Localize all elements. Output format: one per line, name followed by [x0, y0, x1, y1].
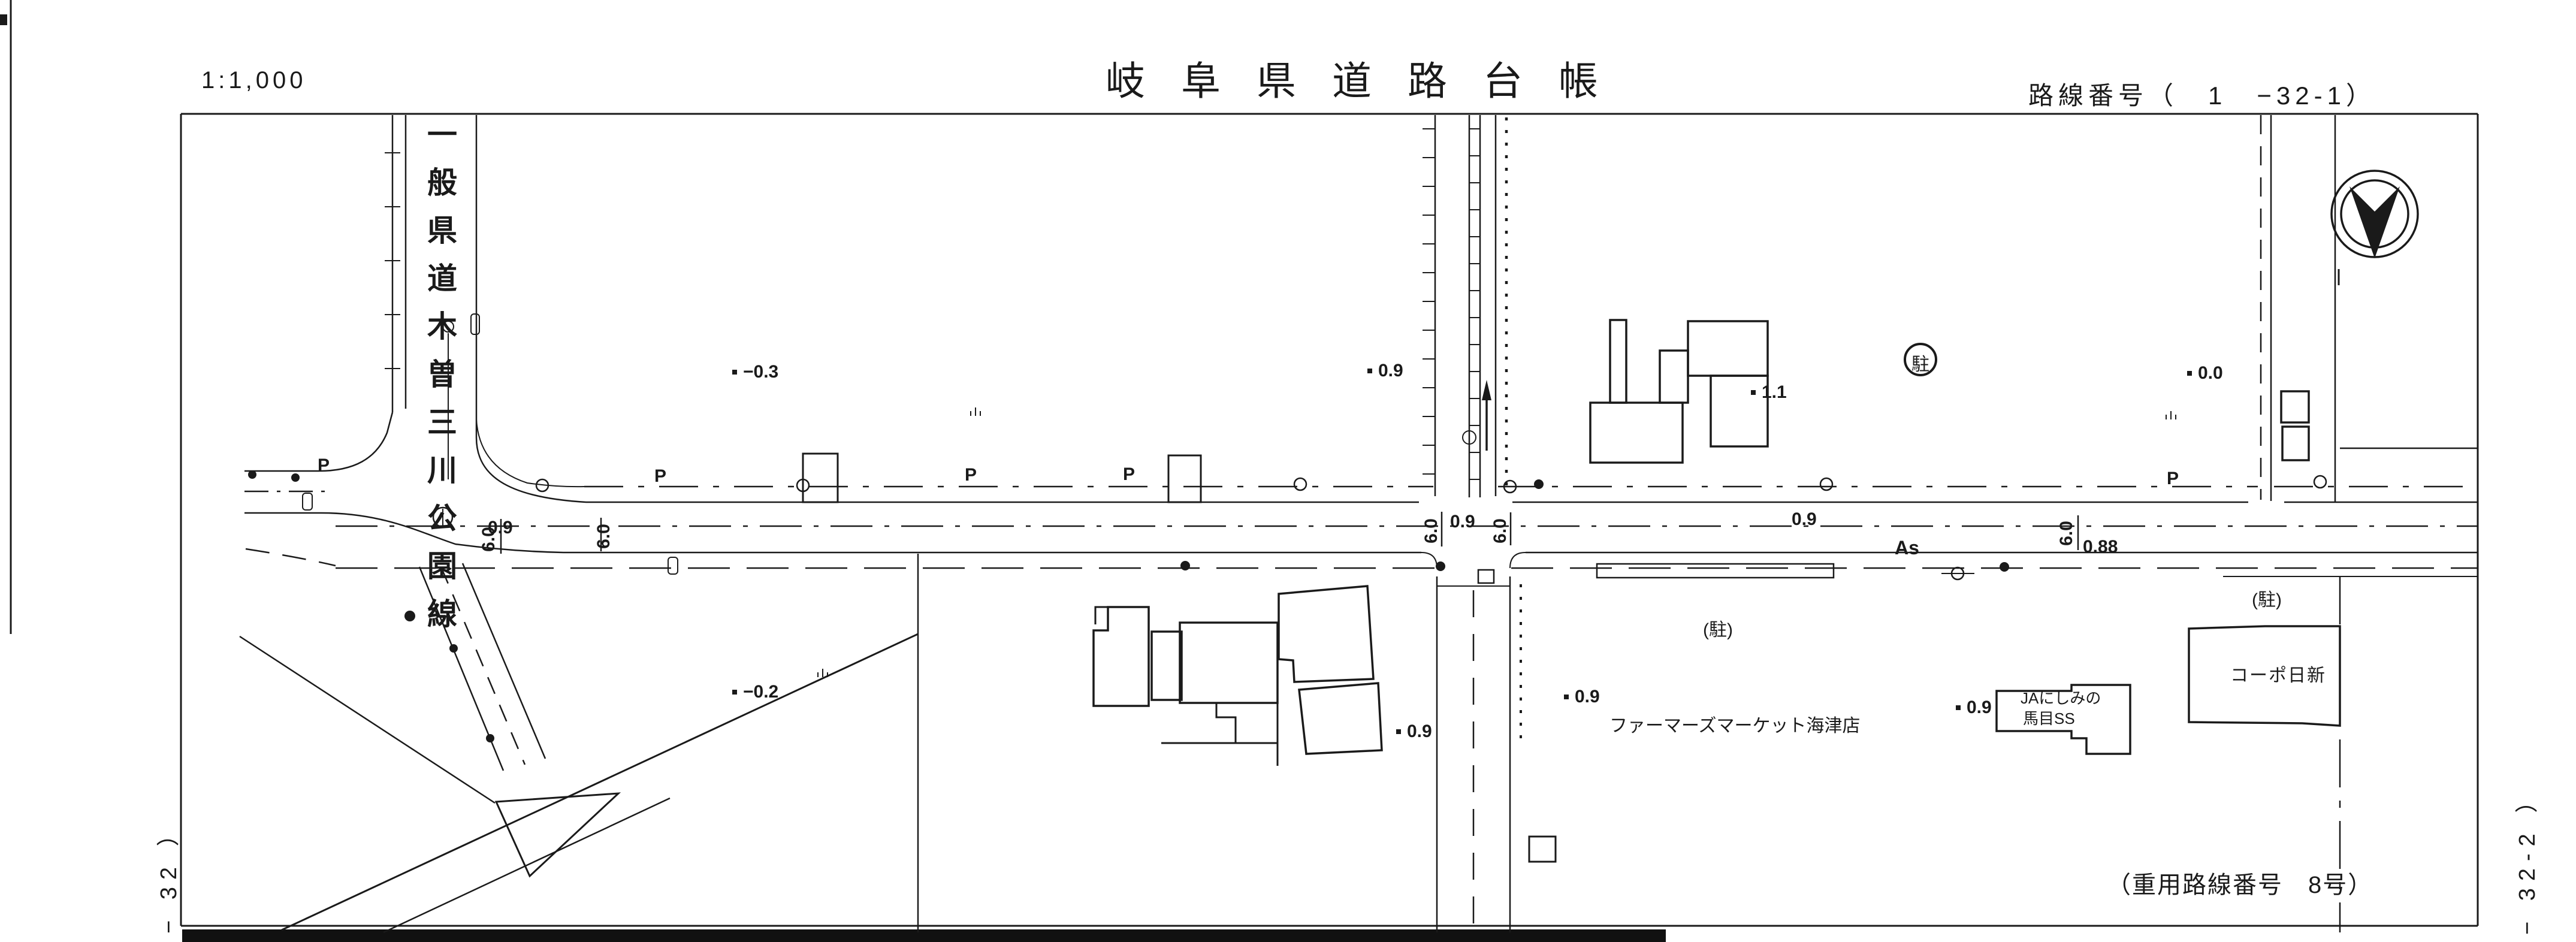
spot-elevation-value: 1.1: [1762, 382, 1787, 403]
parking-label: (駐): [2252, 585, 2282, 611]
map-linework: [0, 0, 2576, 942]
north-arrow-icon: [2332, 171, 2418, 285]
pole-label: P: [2167, 469, 2179, 489]
spot-elevation: 0.9: [1564, 687, 1600, 707]
label-ja-line1: JAにしみの: [2021, 688, 2101, 708]
width-ticks: [501, 512, 2078, 554]
point-dot-icon: [1564, 695, 1569, 699]
map-scale: 1:1,000: [201, 67, 306, 94]
overlap-route-note: （重用路線番号 8号）: [2107, 865, 2373, 900]
spot-elevation-value: 0.9: [1575, 687, 1600, 707]
grass-icon: [971, 407, 980, 416]
spot-elevation: 1.1: [1751, 382, 1787, 403]
main-road: [246, 487, 2478, 568]
left-intersection: [240, 115, 918, 932]
page-edge: [0, 0, 11, 634]
road-name-vertical: 一般県道木曽三川公園線: [418, 119, 461, 646]
spot-elevation-value: 0.9: [1378, 361, 1403, 381]
width-label: 6.0: [479, 527, 499, 552]
point-dot-icon: [1956, 705, 1961, 710]
point-dot-icon: [2187, 371, 2192, 376]
route-number: 路線番号（ 1 −32-1）: [2028, 76, 2376, 112]
spot-elevation: 0.9: [1396, 721, 1432, 742]
parking-strip: [1597, 564, 1834, 578]
width-label: 6.0: [2056, 521, 2077, 546]
label-corpo-nisshin: コーポ日新: [2230, 660, 2326, 687]
road-measure: 0.88: [2083, 537, 2118, 557]
map-frame: [181, 114, 2478, 942]
width-label: 6.0: [594, 524, 614, 549]
scan-black-bar: [182, 929, 1666, 942]
point-dot-icon: [1367, 369, 1372, 373]
spot-elevation-value: −0.3: [743, 362, 778, 382]
pole-label: P: [1123, 464, 1135, 485]
spot-elevation: 0.0: [2187, 363, 2223, 384]
pole-label: P: [654, 466, 666, 487]
central-vertical-road-upper: [1423, 115, 1506, 497]
spot-elevation: 0.9: [1956, 698, 1992, 718]
spot-elevation: −0.3: [732, 362, 778, 382]
spot-elevation: 0.9: [1367, 361, 1403, 381]
surface-type-label: As: [1895, 537, 1919, 559]
central-vertical-road-lower: [1437, 570, 1556, 932]
parking-label: (駐): [1703, 615, 1733, 641]
spot-elevation-value: 0.9: [1967, 698, 1992, 718]
width-label: 6.0: [1421, 518, 1442, 544]
sheet-ref-left: − 32 ）: [150, 766, 183, 934]
page-title: 岐阜県道路台帳: [1106, 49, 1634, 107]
spot-elevation-value: 0.9: [1407, 721, 1432, 742]
sheet-ref-right: − 32-2 ）: [2508, 743, 2541, 935]
pole-label: P: [318, 455, 330, 476]
width-label: 6.0: [1490, 518, 1511, 544]
road-ledger-sheet: { "header": { "scale_label": "1:1,000", …: [0, 0, 2576, 942]
spot-elevation-value: 0.0: [2198, 363, 2223, 384]
spot-elevation-value: −0.2: [743, 682, 778, 702]
point-dot-icon: [1396, 729, 1401, 734]
label-farmers-market: ファーマーズマーケット海津店: [1609, 711, 1861, 737]
grass-icon: [2166, 411, 2176, 419]
spot-elevation: −0.2: [732, 682, 778, 702]
buildings-north: [803, 320, 2309, 502]
parking-circled-label: 駐: [1911, 349, 1929, 376]
label-ja-line2: 馬目SS: [2023, 708, 2075, 729]
pole-label: P: [965, 465, 977, 485]
point-dot-icon: [1751, 390, 1756, 395]
point-dot-icon: [732, 690, 737, 695]
point-dot-icon: [732, 370, 737, 375]
road-measure: 0.9: [1450, 512, 1475, 532]
road-measure: 0.9: [1792, 509, 1817, 530]
